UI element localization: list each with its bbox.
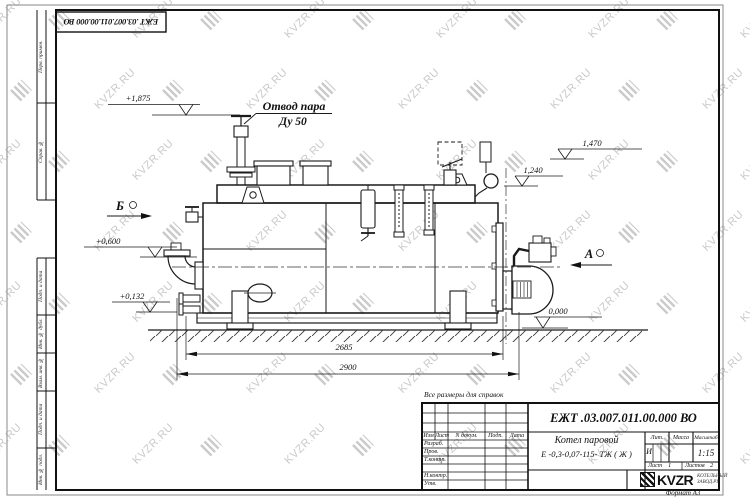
product-name: Котел паровой <box>530 436 643 446</box>
sheets-total: 2 <box>710 463 713 470</box>
burner-assembly <box>492 223 556 314</box>
kvzr-logo-icon <box>641 473 654 486</box>
role-nkontr: Н.контр. <box>424 473 447 479</box>
pressure-gauge <box>475 142 498 197</box>
view-label-b: Б <box>115 199 124 213</box>
col-podp: Подп. <box>485 433 506 439</box>
kvzr-logo-sub2: ЗАВОД.РУ <box>697 480 719 486</box>
corner-stamp: ЕЖТ .03.007.011.00.000 ВО <box>56 12 166 32</box>
role-utv: Утв. <box>424 481 436 487</box>
view-arrow-b <box>107 202 152 220</box>
scale-value: 1:15 <box>693 449 719 458</box>
reference-note: Все размеры для справок <box>424 391 504 399</box>
kvzr-logo-text: KVZR <box>657 473 693 487</box>
lit-label: Лит. <box>645 435 669 441</box>
sheets-label: Листов <box>685 463 705 469</box>
elevation-0000: 0,000 <box>548 306 568 316</box>
front-fittings <box>164 207 203 315</box>
elevation-1240: 1,240 <box>523 165 543 175</box>
kvzr-logo-sub1: КОТЕЛЬНЫЙ <box>697 474 727 480</box>
role-razrab: Разраб. <box>424 441 443 447</box>
margin-label-sprav-no: Справ. № <box>37 103 46 200</box>
product-model: Е -0,3-0,07-115- ТЖ ( Ж ) <box>528 450 645 459</box>
margin-label-inv-dubl: Инв. № дубл. <box>37 315 46 353</box>
role-prov: Пров. <box>424 449 438 455</box>
callout-steam-outlet: Отвод пара <box>263 99 326 113</box>
col-list: Лист <box>435 433 448 439</box>
col-dokum: N докум. <box>448 433 485 439</box>
margin-label-podp-data-2: Подп. и дата <box>37 391 46 448</box>
callout-du50: Ду 50 <box>278 116 307 128</box>
elevation-1470: 1,470 <box>582 138 602 148</box>
margin-label-vzam-inv: Взам. инв. № <box>37 353 46 391</box>
sheet-label: Лист <box>648 463 662 469</box>
scale-label: Масштаб <box>693 436 719 442</box>
lit-value: И <box>645 448 653 456</box>
ground <box>148 330 648 342</box>
boiler-body <box>197 174 498 329</box>
dim-2685: 2685 <box>336 342 353 352</box>
view-label-a: А <box>584 247 593 261</box>
margin-label-inv-podl: Инв. № подл. <box>37 448 46 490</box>
manhole <box>244 284 276 302</box>
margin-label-perv-primen: Перв. примен. <box>37 10 46 103</box>
top-hatches <box>254 161 331 185</box>
sheet-number: 1 <box>668 463 671 470</box>
col-izm: Изм <box>422 433 435 439</box>
dim-2900: 2900 <box>340 362 358 372</box>
mass-label: Масса <box>669 435 693 441</box>
margin-label-podp-data-1: Подп. и дата <box>37 258 46 315</box>
level-gauges <box>361 185 434 241</box>
elevation-1875: +1,875 <box>126 93 151 103</box>
format-note: Формат А3 <box>633 490 733 497</box>
role-tkontr: Т.контр. <box>424 457 446 463</box>
drawing-sheet: KVZR.RUKVZR.RUKVZR.RUKVZR.RUKVZR.RUKVZR.… <box>0 0 750 500</box>
steam-outlet-valve <box>227 116 255 185</box>
elevation-0132: +0,132 <box>120 291 146 301</box>
elevation-0600: +0,600 <box>96 236 122 246</box>
col-data: Дата <box>506 433 528 439</box>
title-doc-number: ЕЖТ .03.007.011.00.000 ВО <box>530 405 717 431</box>
